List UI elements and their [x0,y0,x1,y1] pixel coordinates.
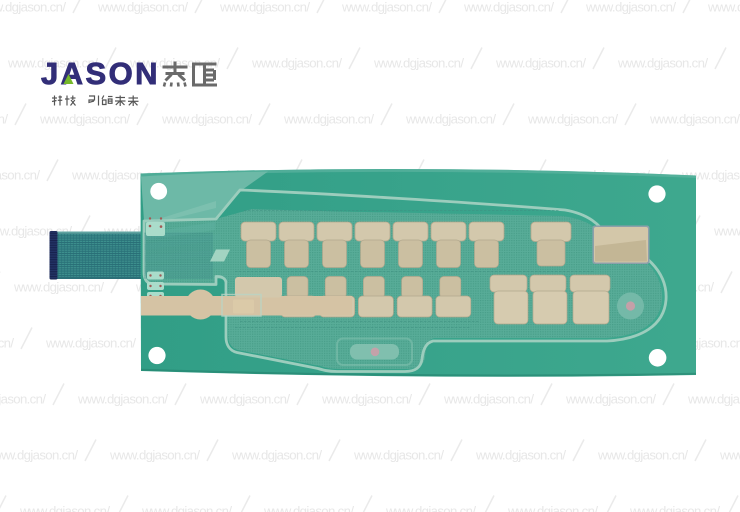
svg-text:www.dgjason.cn/: www.dgjason.cn/ [0,0,66,15]
svg-text:www.dgjason.cn/: www.dgjason.cn/ [353,448,444,463]
svg-text:www.dgjason.cn/: www.dgjason.cn/ [713,224,740,239]
svg-text:www.dgjason.cn/: www.dgjason.cn/ [719,448,740,463]
svg-text:www.dgjason.cn/: www.dgjason.cn/ [0,448,78,463]
svg-text:JASON: JASON [41,56,158,91]
svg-text:www.dgjason.cn/: www.dgjason.cn/ [385,504,476,512]
svg-text:www.dgjason.cn/: www.dgjason.cn/ [507,504,598,512]
svg-text:www.dgjason.cn/: www.dgjason.cn/ [565,392,656,407]
svg-text:www.dgjason.cn/: www.dgjason.cn/ [373,56,464,71]
svg-text:www.dgjason.cn/: www.dgjason.cn/ [0,392,46,407]
svg-text:www.dgjason.cn/: www.dgjason.cn/ [0,168,40,183]
svg-text:www.dgjason.cn/: www.dgjason.cn/ [251,56,342,71]
svg-text:www.dgjason.cn/: www.dgjason.cn/ [231,448,322,463]
svg-text:www.dgjason.cn/: www.dgjason.cn/ [13,280,104,295]
svg-text:www.dgjason.cn/: www.dgjason.cn/ [45,336,136,351]
svg-text:www.dgjason.cn/: www.dgjason.cn/ [475,448,566,463]
svg-text:www.dgjason.cn/: www.dgjason.cn/ [597,448,688,463]
svg-text:www.dgjason.cn/: www.dgjason.cn/ [263,504,354,512]
svg-text:www.dgjason.cn/: www.dgjason.cn/ [321,392,412,407]
svg-text:www.dgjason.cn/: www.dgjason.cn/ [585,0,676,15]
svg-text:www.dgjason.cn/: www.dgjason.cn/ [39,112,130,127]
svg-text:www.dgjason.cn/: www.dgjason.cn/ [707,0,740,15]
svg-text:www.dgjason.cn/: www.dgjason.cn/ [463,0,554,15]
svg-text:www.dgjason.cn/: www.dgjason.cn/ [199,392,290,407]
svg-text:www.dgjason.cn/: www.dgjason.cn/ [219,0,310,15]
svg-text:www.dgjason.cn/: www.dgjason.cn/ [495,56,586,71]
svg-text:www.dgjason.cn/: www.dgjason.cn/ [283,112,374,127]
svg-text:www.dgjason.cn/: www.dgjason.cn/ [405,112,496,127]
svg-text:www.dgjason.cn/: www.dgjason.cn/ [0,112,8,127]
svg-text:www.dgjason.cn/: www.dgjason.cn/ [161,112,252,127]
svg-text:www.dgjason.cn/: www.dgjason.cn/ [19,504,110,512]
svg-text:www.dgjason.cn/: www.dgjason.cn/ [629,504,720,512]
svg-text:www.dgjason.cn/: www.dgjason.cn/ [649,112,740,127]
svg-text:www.dgjason.cn/: www.dgjason.cn/ [527,112,618,127]
svg-text:www.dgjason.cn/: www.dgjason.cn/ [617,56,708,71]
svg-text:www.dgjason.cn/: www.dgjason.cn/ [0,336,14,351]
svg-text:www.dgjason.cn/: www.dgjason.cn/ [687,392,740,407]
svg-text:www.dgjason.cn/: www.dgjason.cn/ [141,504,232,512]
svg-text:www.dgjason.cn/: www.dgjason.cn/ [341,0,432,15]
svg-text:www.dgjason.cn/: www.dgjason.cn/ [443,392,534,407]
svg-text:www.dgjason.cn/: www.dgjason.cn/ [77,392,168,407]
svg-text:www.dgjason.cn/: www.dgjason.cn/ [109,448,200,463]
svg-text:www.dgjason.cn/: www.dgjason.cn/ [97,0,188,15]
